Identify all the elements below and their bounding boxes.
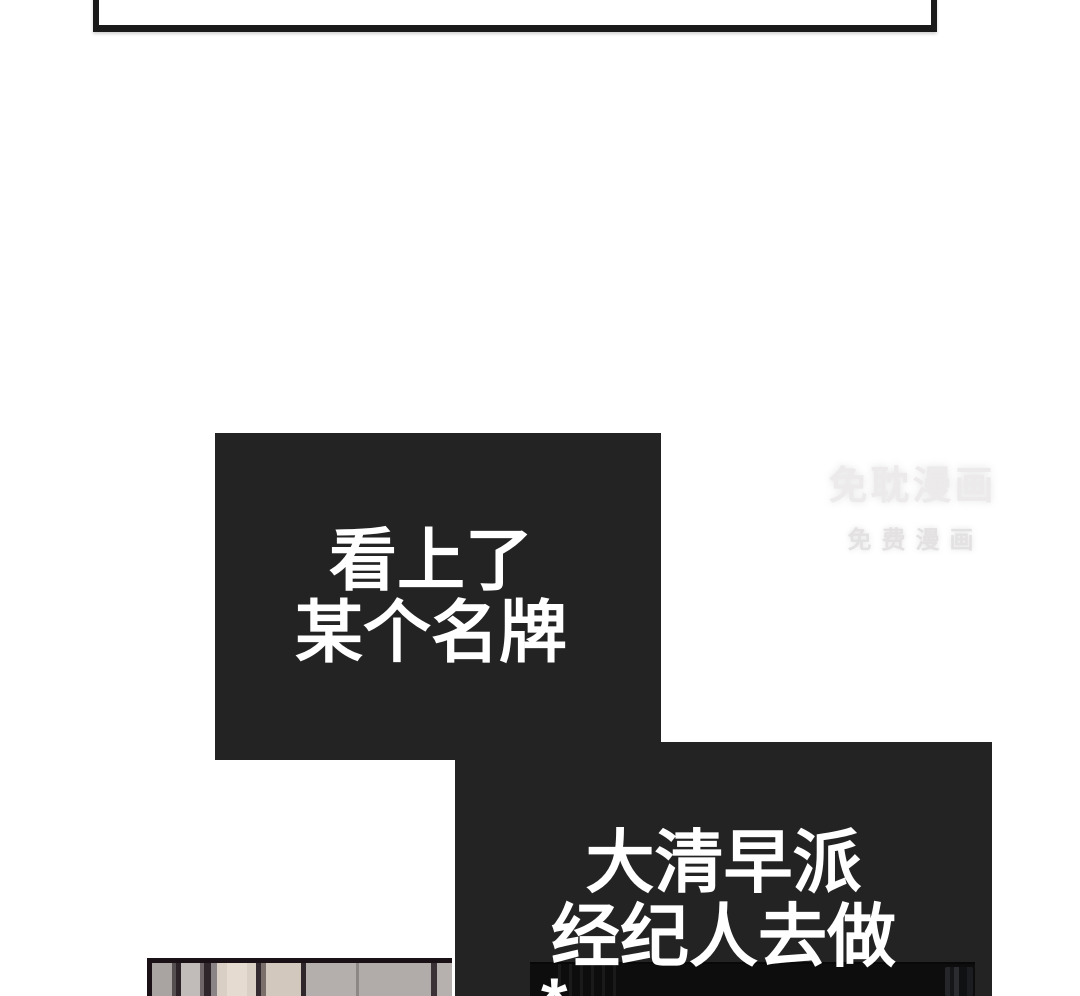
comic-panel-frame — [93, 0, 937, 32]
speech-line: 某个名牌 — [215, 597, 647, 669]
watermark-title: 免耽漫画 — [820, 455, 1005, 511]
speech-line: 大清早派 — [455, 826, 992, 900]
speech-panel-1: 看上了 某个名牌 — [215, 433, 661, 760]
speech-line: 经纪人去做 — [455, 900, 992, 974]
speech-text-1: 看上了 某个名牌 — [215, 433, 661, 669]
door-photo — [147, 958, 452, 996]
watermark-subtitle: 免费漫画 — [820, 520, 1005, 555]
watermark: 免耽漫画 免费漫画 — [820, 455, 1005, 555]
speech-text-2: 大清早派 经纪人去做 — [455, 742, 992, 974]
speech-panel-2: 大清早派 经纪人去做 * — [455, 742, 992, 996]
footnote-asterisk: * — [541, 966, 567, 996]
speech-line: 看上了 — [215, 525, 647, 597]
